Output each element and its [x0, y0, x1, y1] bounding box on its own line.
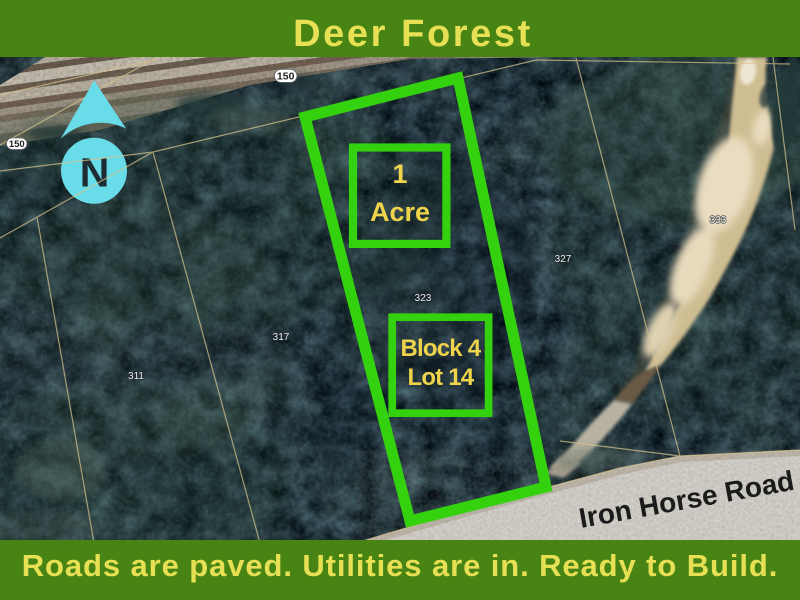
svg-text:333: 333 — [710, 215, 727, 226]
svg-text:311: 311 — [128, 371, 144, 382]
svg-text:Acre: Acre — [370, 197, 430, 227]
svg-text:323: 323 — [415, 293, 432, 304]
svg-text:1: 1 — [392, 159, 407, 189]
svg-text:N: N — [80, 150, 110, 196]
svg-text:Block 4: Block 4 — [401, 335, 482, 362]
svg-text:150: 150 — [9, 139, 25, 150]
svg-text:Roads are paved. Utilities are: Roads are paved. Utilities are in. Ready… — [22, 548, 778, 583]
svg-text:327: 327 — [555, 254, 572, 265]
svg-text:Deer Forest: Deer Forest — [293, 13, 533, 55]
svg-text:150: 150 — [277, 71, 295, 83]
svg-text:317: 317 — [273, 332, 290, 343]
svg-text:Lot 14: Lot 14 — [407, 364, 474, 391]
